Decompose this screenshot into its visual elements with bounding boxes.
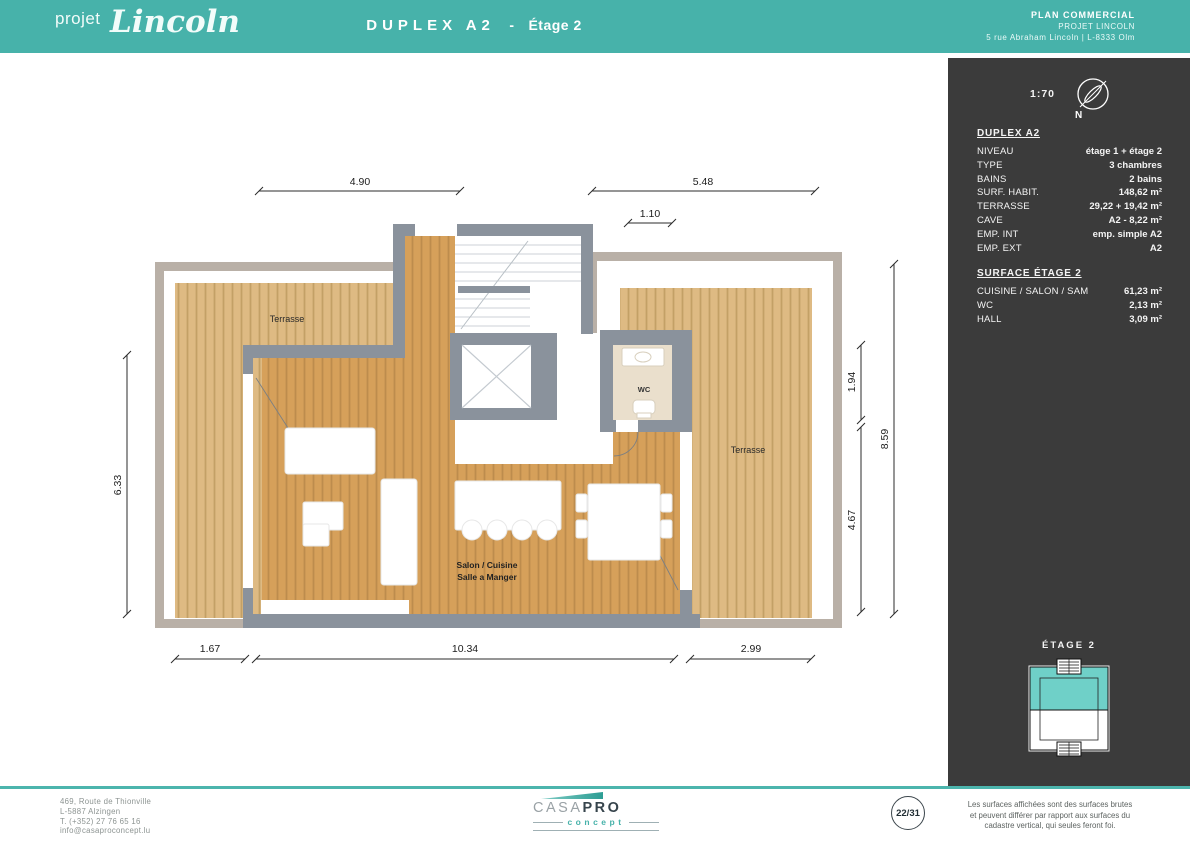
casapro-concept-row: concept xyxy=(533,817,659,827)
surface-details: SURFACE ÉTAGE 2 CUISINE / SALON / SAM61,… xyxy=(977,268,1162,326)
dim-top-left: 4.90 xyxy=(350,176,371,188)
dim-bottom-right: 2.99 xyxy=(741,643,762,655)
salon-label-line2: Salle a Manger xyxy=(457,572,517,582)
info-sidebar: 1:70 N DUPLEX A2 NIVEAUétage 1 + étage 2… xyxy=(948,58,1190,786)
spec-row: CAVEA2 - 8,22 m² xyxy=(977,214,1162,228)
title-separator: - xyxy=(509,17,514,33)
dim-bottom-left: 1.67 xyxy=(200,643,221,655)
casapro-roof-icon xyxy=(541,792,603,799)
page-number-badge: 22/31 xyxy=(891,796,925,830)
title-unit: DUPLEX A2 xyxy=(366,17,495,34)
staircase xyxy=(455,236,581,333)
scale-label: 1:70 xyxy=(1030,88,1055,100)
spec-row: NIVEAUétage 1 + étage 2 xyxy=(977,145,1162,159)
minimap-drawing xyxy=(1025,658,1113,758)
address-line: 469, Route de Thionville xyxy=(60,797,151,807)
casapro-concept-label: concept xyxy=(567,817,624,827)
spec-row: SURF. HABIT.148,62 m² xyxy=(977,186,1162,200)
spec-row: CUISINE / SALON / SAM61,23 m² xyxy=(977,285,1162,299)
minimap-label: ÉTAGE 2 xyxy=(948,640,1190,651)
unit-details: DUPLEX A2 NIVEAUétage 1 + étage 2 TYPE3 … xyxy=(977,128,1162,255)
company-address: 469, Route de Thionville L-5887 Alzingen… xyxy=(60,797,151,836)
sofa xyxy=(381,479,417,585)
dim-top-right: 5.48 xyxy=(693,176,714,188)
spec-row: HALL3,09 m² xyxy=(977,313,1162,327)
unit-details-heading: DUPLEX A2 xyxy=(977,128,1162,139)
plan-sheet-page: projet Lincoln DUPLEX A2 - Étage 2 PLAN … xyxy=(0,0,1190,841)
page-title: DUPLEX A2 - Étage 2 xyxy=(0,17,948,35)
spec-row: EMP. INTemp. simple A2 xyxy=(977,228,1162,242)
dim-bottom-center: 10.34 xyxy=(452,643,478,655)
wc-label: WC xyxy=(638,385,651,394)
doc-project: PROJET LINCOLN xyxy=(986,21,1135,32)
dining-table xyxy=(588,484,660,560)
elevator-shaft xyxy=(450,333,557,420)
casapro-wordmark: CASAPRO xyxy=(533,800,659,816)
doc-address: 5 rue Abraham Lincoln | L-8333 Olm xyxy=(986,32,1135,43)
spec-row: EMP. EXTA2 xyxy=(977,242,1162,256)
document-info: PLAN COMMERCIAL PROJET LINCOLN 5 rue Abr… xyxy=(986,10,1135,43)
casapro-logo: CASAPRO concept xyxy=(533,792,659,831)
spec-row: WC2,13 m² xyxy=(977,299,1162,313)
terrace-right-label: Terrasse xyxy=(731,445,766,455)
title-floor: Étage 2 xyxy=(528,17,581,33)
footer-divider xyxy=(0,786,1190,789)
floor-plan-drawing: WC xyxy=(0,58,948,786)
surface-disclaimer: Les surfaces affichées sont des surfaces… xyxy=(952,800,1148,832)
dim-right-total: 8.59 xyxy=(879,429,891,450)
spec-row: TYPE3 chambres xyxy=(977,159,1162,173)
address-line: info@casaproconcept.lu xyxy=(60,826,151,836)
minimap-stairs-bottom xyxy=(1057,742,1081,756)
compass-icon: N xyxy=(1067,74,1113,122)
dim-right-upper: 1.94 xyxy=(846,372,858,393)
dim-left: 6.33 xyxy=(112,475,124,496)
dim-right-lower: 4.67 xyxy=(846,510,858,531)
plan-canvas: WC xyxy=(0,58,948,786)
doc-type: PLAN COMMERCIAL xyxy=(986,10,1135,21)
sideboard xyxy=(285,428,375,474)
address-line: L-5887 Alzingen xyxy=(60,807,151,817)
spec-row: TERRASSE29,22 + 19,42 m² xyxy=(977,200,1162,214)
floor-minimap: ÉTAGE 2 xyxy=(948,640,1190,763)
surface-details-heading: SURFACE ÉTAGE 2 xyxy=(977,268,1162,279)
dim-top-small: 1.10 xyxy=(640,208,661,220)
salon-label-line1: Salon / Cuisine xyxy=(457,560,518,570)
spec-row: BAINS2 bains xyxy=(977,173,1162,187)
wc-sink xyxy=(622,348,664,366)
header-bar: projet Lincoln DUPLEX A2 - Étage 2 PLAN … xyxy=(0,0,1190,53)
compass-north-label: N xyxy=(1075,110,1082,121)
address-line: T. (+352) 27 76 65 16 xyxy=(60,817,151,827)
wc-toilet xyxy=(633,400,655,414)
wc-room: WC xyxy=(600,330,690,432)
scale-row: 1:70 N xyxy=(1030,74,1190,122)
minimap-stairs-top xyxy=(1057,659,1081,674)
terrace-left-label: Terrasse xyxy=(270,314,305,324)
